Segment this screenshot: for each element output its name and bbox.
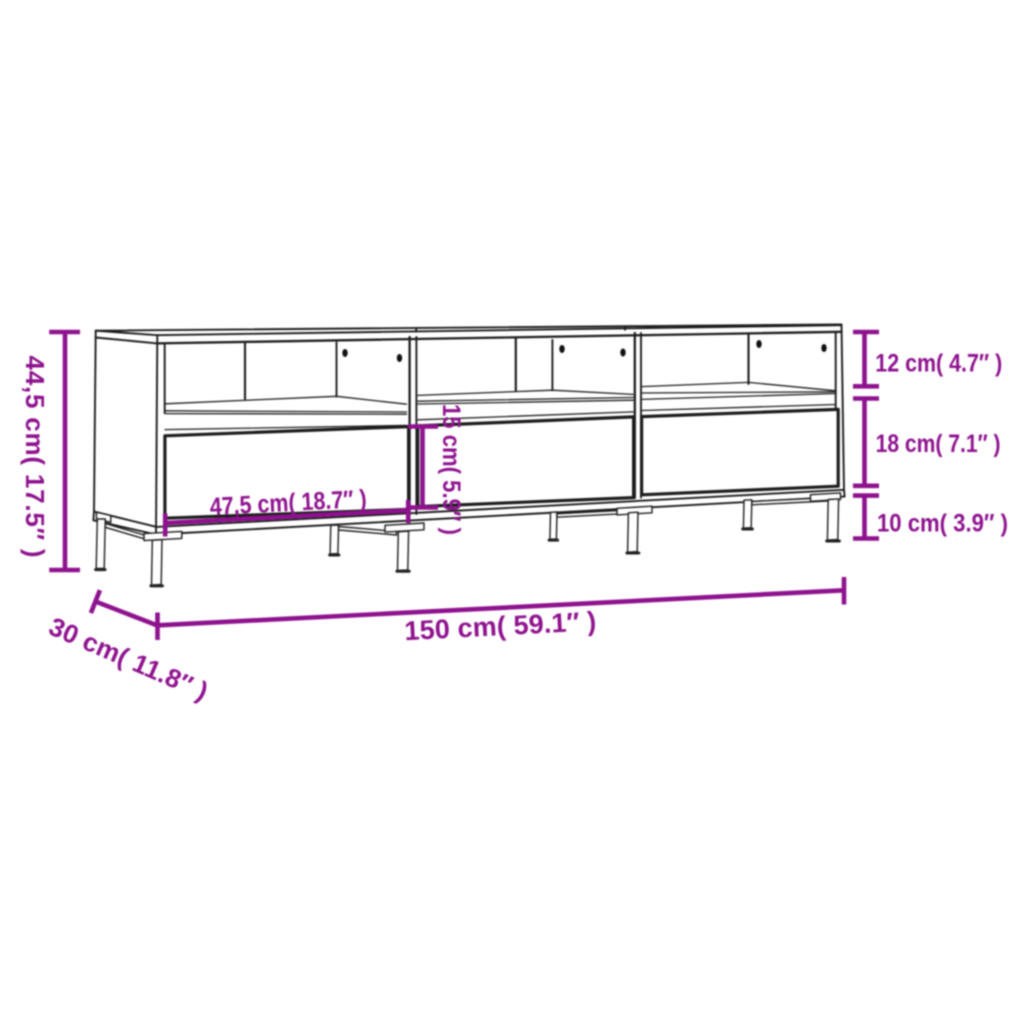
svg-text:18 cm( 7.1″ ): 18 cm( 7.1″ ) — [876, 430, 1001, 458]
svg-text:44,5 cm( 17.5″ ): 44,5 cm( 17.5″ ) — [20, 356, 50, 558]
svg-text:10 cm( 3.9″ ): 10 cm( 3.9″ ) — [877, 509, 1008, 537]
svg-text:12 cm( 4.7″ ): 12 cm( 4.7″ ) — [875, 349, 1002, 377]
svg-text:15 cm( 5.9″ ): 15 cm( 5.9″ ) — [437, 404, 465, 535]
